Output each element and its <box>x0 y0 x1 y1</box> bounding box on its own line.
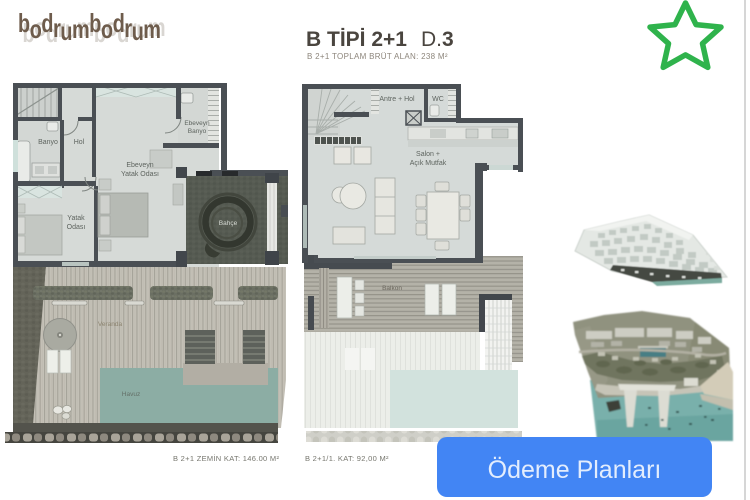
svg-text:Balkon: Balkon <box>382 285 402 292</box>
svg-text:Banyo: Banyo <box>188 128 207 135</box>
svg-text:Açık Mutfak: Açık Mutfak <box>410 160 447 167</box>
svg-text:Odası: Odası <box>67 224 86 231</box>
svg-text:Bahçe: Bahçe <box>219 220 238 227</box>
svg-text:Yatak: Yatak <box>67 215 85 222</box>
svg-text:Hol: Hol <box>74 139 85 146</box>
svg-text:Ebeveyn: Ebeveyn <box>184 120 210 127</box>
svg-text:Havuz: Havuz <box>122 391 140 398</box>
svg-text:Banyo: Banyo <box>38 139 58 146</box>
svg-text:Ebeveyn: Ebeveyn <box>126 162 153 169</box>
svg-text:Antre + Hol: Antre + Hol <box>379 96 415 103</box>
svg-text:WC: WC <box>432 96 444 103</box>
svg-text:Veranda: Veranda <box>98 321 123 328</box>
svg-text:Salon +: Salon + <box>416 151 440 158</box>
svg-text:Yatak Odası: Yatak Odası <box>121 171 159 178</box>
